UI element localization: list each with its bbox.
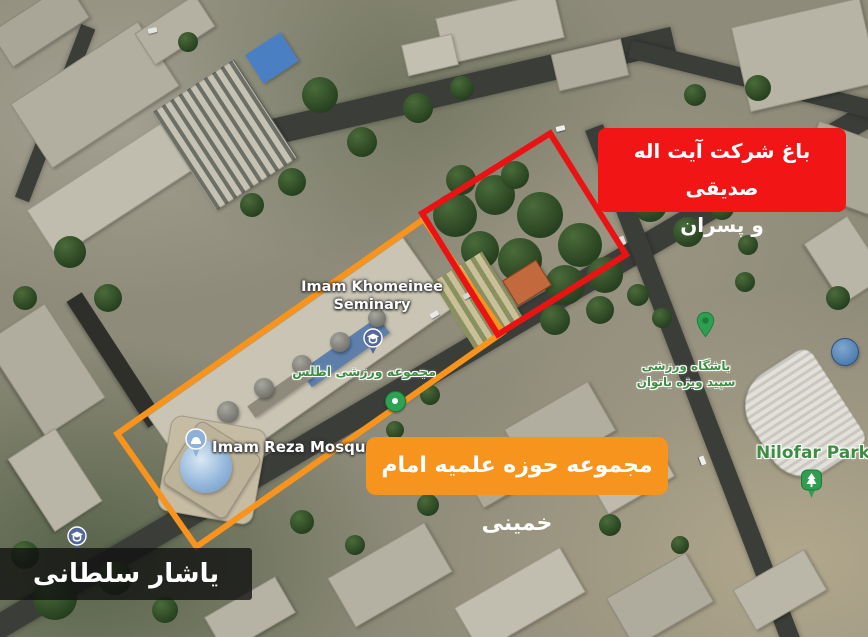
school-pin-icon xyxy=(362,328,384,355)
park-tree-pin-icon xyxy=(799,468,824,500)
seminary-annotation-box: مجموعه حوزه علمیه امام خمینی xyxy=(366,437,668,495)
mosque-place-label: Imam Reza Mosque xyxy=(212,438,376,456)
atlas-green-dot-pin-icon xyxy=(385,391,406,412)
garden-annotation-line2: و پسران xyxy=(598,207,846,244)
credit-label-text: یاشار سلطانی xyxy=(33,559,219,589)
seminary-boundary-rectangle xyxy=(113,215,507,551)
sepid-gym-pin-icon xyxy=(695,311,716,338)
credit-label-box: یاشار سلطانی xyxy=(0,548,252,600)
sepid-gym-label-line1: باشگاه ورزشی xyxy=(626,358,746,374)
seminary-place-label: Imam Khomeinee Seminary xyxy=(292,278,452,314)
seminary-place-label-line1: Imam Khomeinee xyxy=(292,278,452,296)
garden-annotation-line1: باغ شرکت آیت اله صدیقی xyxy=(598,133,846,207)
mosque-pin-icon xyxy=(184,428,208,458)
nilofar-park-label: Nilofar Park xyxy=(756,443,868,463)
sepid-gym-label-line2: سپید ویژه بانوان xyxy=(626,374,746,390)
sepid-gym-label: باشگاه ورزشی سپید ویژه بانوان xyxy=(626,358,746,390)
seminary-place-label-line2: Seminary xyxy=(292,296,452,314)
atlas-sports-label: مجموعه ورزشی اطلس xyxy=(296,364,436,379)
annotated-satellite-map: Imam Khomeinee Seminary Imam Reza Mosque… xyxy=(0,0,868,637)
garden-annotation-box: باغ شرکت آیت اله صدیقی و پسران xyxy=(598,128,846,212)
